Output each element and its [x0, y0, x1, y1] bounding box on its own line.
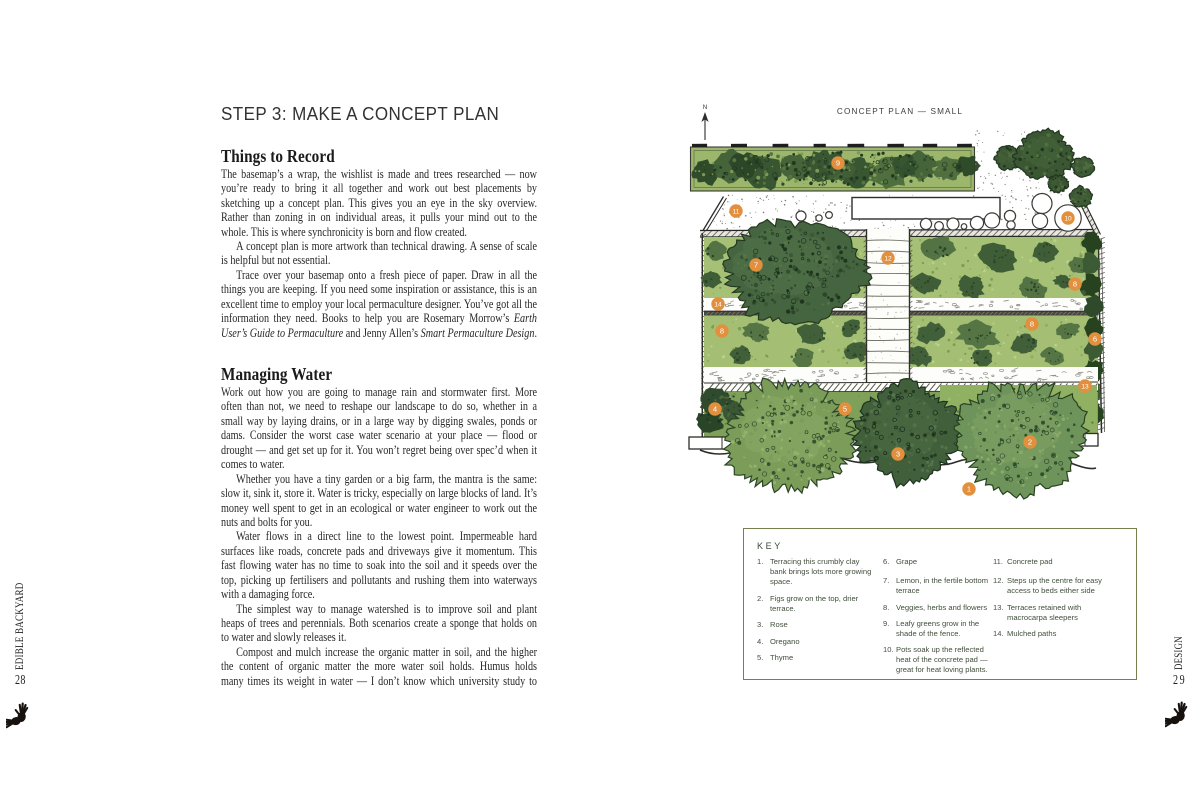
- svg-text:8: 8: [1073, 279, 1077, 288]
- svg-text:6: 6: [1093, 334, 1097, 343]
- svg-text:3: 3: [896, 449, 900, 458]
- svg-text:11: 11: [733, 208, 740, 215]
- svg-text:N: N: [703, 104, 707, 111]
- svg-text:13: 13: [1081, 383, 1089, 390]
- svg-text:4: 4: [713, 404, 717, 413]
- svg-text:8: 8: [1030, 319, 1034, 328]
- svg-text:10: 10: [1064, 215, 1072, 222]
- svg-text:12: 12: [884, 255, 892, 262]
- svg-text:9: 9: [836, 158, 840, 167]
- svg-text:7: 7: [754, 260, 758, 269]
- svg-text:2: 2: [1028, 437, 1032, 446]
- svg-text:14: 14: [714, 301, 722, 308]
- svg-text:1: 1: [967, 484, 971, 493]
- svg-text:8: 8: [720, 326, 724, 335]
- svg-text:CONCEPT PLAN — SMALL: CONCEPT PLAN — SMALL: [837, 107, 963, 116]
- svg-text:5: 5: [843, 404, 847, 413]
